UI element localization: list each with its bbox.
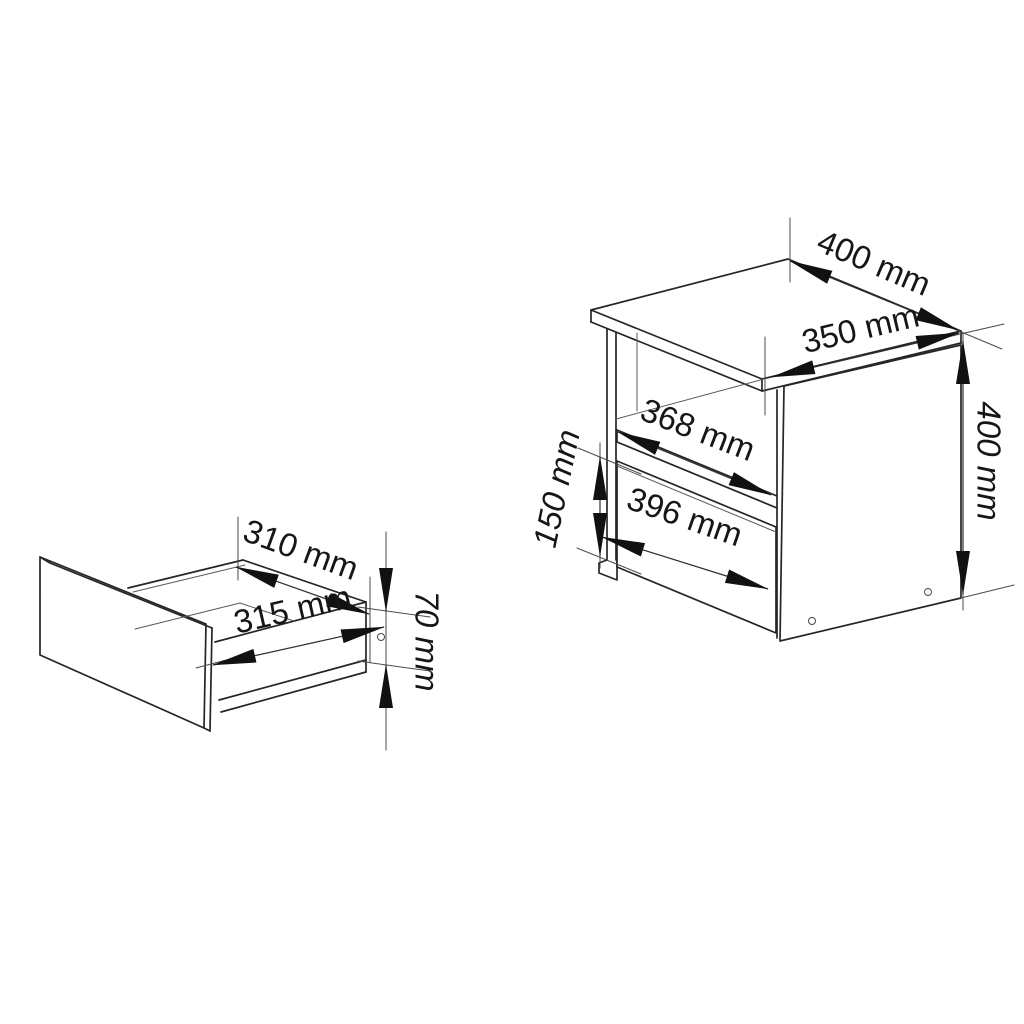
- drawer-figure: 310 mm 315 mm 70 mm: [40, 512, 445, 750]
- screw-hole: [809, 618, 816, 625]
- cabinet-left-foot: [599, 559, 617, 580]
- dim-label-cabinet-height: 400 mm: [970, 401, 1007, 520]
- dimension-diagram: 310 mm 315 mm 70 mm: [0, 0, 1024, 1024]
- drawer-bottom-board: [221, 672, 366, 712]
- dim-label-shelf-opening-width: 368 mm: [636, 391, 761, 468]
- drawer-front-panel: [40, 557, 206, 728]
- screw-hole: [925, 589, 932, 596]
- dim-label-drawer-front-height: 150 mm: [526, 426, 587, 550]
- screw-hole: [378, 634, 385, 641]
- dim-label-drawer-top-width: 310 mm: [239, 512, 364, 588]
- drawer-right-wall-bottom: [219, 660, 366, 700]
- dim-label-drawer-side-height: 70 mm: [408, 591, 445, 692]
- cabinet-figure: 400 mm 350 mm 400 mm 368 mm 396 mm 150 m…: [526, 218, 1014, 641]
- drawer-left-wall-edge: [128, 560, 243, 588]
- technical-drawing-page: 310 mm 315 mm 70 mm: [0, 0, 1024, 1024]
- cabinet-right-panel: [780, 345, 961, 641]
